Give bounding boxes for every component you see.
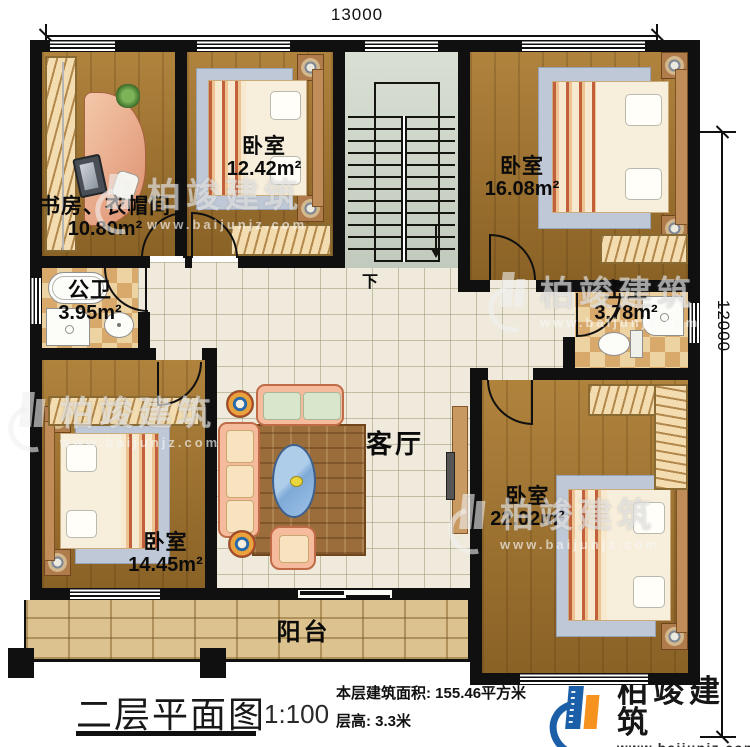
door-leaf: [191, 212, 193, 258]
wall-segment: [533, 368, 700, 380]
wall-segment: [202, 348, 217, 360]
door-leaf: [157, 362, 159, 406]
closet: [654, 384, 688, 490]
floor-stats: 本层建筑面积: 155.46平方米 层高: 3.3米: [336, 682, 526, 731]
brand-website: www.baijunjz.com: [617, 741, 750, 747]
bed-pillow: [66, 510, 97, 538]
room-label-living: 客厅: [342, 430, 448, 458]
bench-mat: [600, 234, 688, 264]
door-leaf: [145, 268, 147, 312]
brand-logo-icon: [548, 684, 610, 747]
wall-segment: [290, 40, 365, 52]
coffee-table: [272, 444, 316, 518]
tv: [446, 452, 455, 500]
floor-plan: 13000 12000 下: [0, 0, 750, 747]
balcony-floor: [24, 600, 470, 662]
bed: [538, 58, 688, 236]
wall-segment: [688, 343, 700, 673]
armchair: [270, 526, 316, 570]
wall-segment: [30, 40, 50, 52]
wall-segment: [392, 588, 470, 600]
door-leaf: [531, 380, 533, 425]
bed-pillow: [633, 502, 665, 534]
window: [197, 40, 290, 52]
room-label-master-bath: 主卫 3.78m²: [576, 280, 676, 324]
stair-handrail: [401, 116, 407, 262]
wall-segment: [30, 588, 70, 600]
room-label-bedroom-bottom-left: 卧室 14.45m²: [108, 532, 223, 576]
floor-area-text: 本层建筑面积: 155.46平方米: [336, 682, 526, 703]
wall-segment: [30, 256, 139, 268]
bed-pillow: [633, 576, 665, 608]
room-label-balcony: 阳台: [256, 620, 351, 646]
door-leaf: [489, 234, 491, 280]
dimension-extension: [656, 24, 658, 40]
toilet: [598, 332, 630, 356]
dimension-height-label: 12000: [713, 295, 733, 357]
wall-segment: [30, 52, 42, 278]
title-underline: [76, 731, 256, 736]
bed-headboard: [676, 477, 688, 634]
room-label-bedroom-top-right: 卧室 16.08m²: [452, 156, 592, 200]
wall-segment: [30, 324, 42, 588]
wall-segment: [470, 368, 488, 380]
bed-pillow: [66, 444, 97, 472]
stair-down-label: 下: [362, 268, 378, 292]
wall-segment: [645, 40, 700, 52]
sofa-three-seat: [218, 422, 260, 538]
side-table: [228, 530, 256, 558]
stair-arrow-tip: [431, 249, 441, 258]
bed-headboard: [675, 69, 689, 226]
wall-segment: [438, 40, 522, 52]
window: [70, 588, 160, 600]
dimension-width-label: 13000: [322, 5, 392, 25]
side-table: [226, 390, 254, 418]
balcony-post: [200, 648, 226, 678]
window: [522, 40, 645, 52]
brand-name: 柏竣建筑: [617, 676, 750, 738]
wall-segment: [115, 40, 197, 52]
bed-pillow: [270, 91, 301, 119]
wall-segment: [238, 256, 345, 268]
dimension-width-line: [45, 35, 658, 37]
wall-segment: [458, 280, 490, 292]
window: [365, 40, 438, 52]
toilet-tank: [630, 330, 643, 358]
scale-label: 1:100: [264, 699, 329, 730]
stair-direction-arrow: [435, 224, 437, 250]
room-label-public-bath: 公卫 3.95m²: [36, 280, 144, 324]
dimension-extension: [45, 24, 47, 40]
wall-segment: [470, 380, 482, 685]
wall-segment: [160, 588, 298, 600]
window: [50, 40, 115, 52]
sofa-loveseat: [256, 384, 344, 426]
bench-mat: [230, 224, 332, 256]
bed-pillow: [625, 168, 662, 200]
window: [688, 303, 700, 343]
wall-segment: [648, 673, 700, 685]
floor-height-text: 层高: 3.3米: [336, 710, 526, 731]
stair-guardrail: [374, 82, 440, 262]
bed-headboard: [44, 421, 55, 560]
wall-segment: [688, 52, 700, 303]
balcony-post: [8, 648, 34, 678]
brand-logo: 柏竣建筑 www.baijunjz.com: [548, 676, 750, 747]
wall-segment: [333, 52, 345, 268]
window: [520, 673, 648, 685]
plant: [116, 84, 140, 108]
bed-pillow: [625, 94, 662, 126]
room-label-bedroom-top-left: 卧室 12.42m²: [198, 136, 330, 180]
wall-segment: [30, 348, 156, 360]
room-label-study: 书房、衣帽间 10.80m²: [25, 196, 185, 240]
dimension-extension: [700, 131, 736, 133]
sliding-door: [298, 588, 392, 600]
room-label-bedroom-bottom-right: 卧室 22.02m²: [470, 486, 585, 530]
dimension-height-line: [721, 132, 723, 738]
